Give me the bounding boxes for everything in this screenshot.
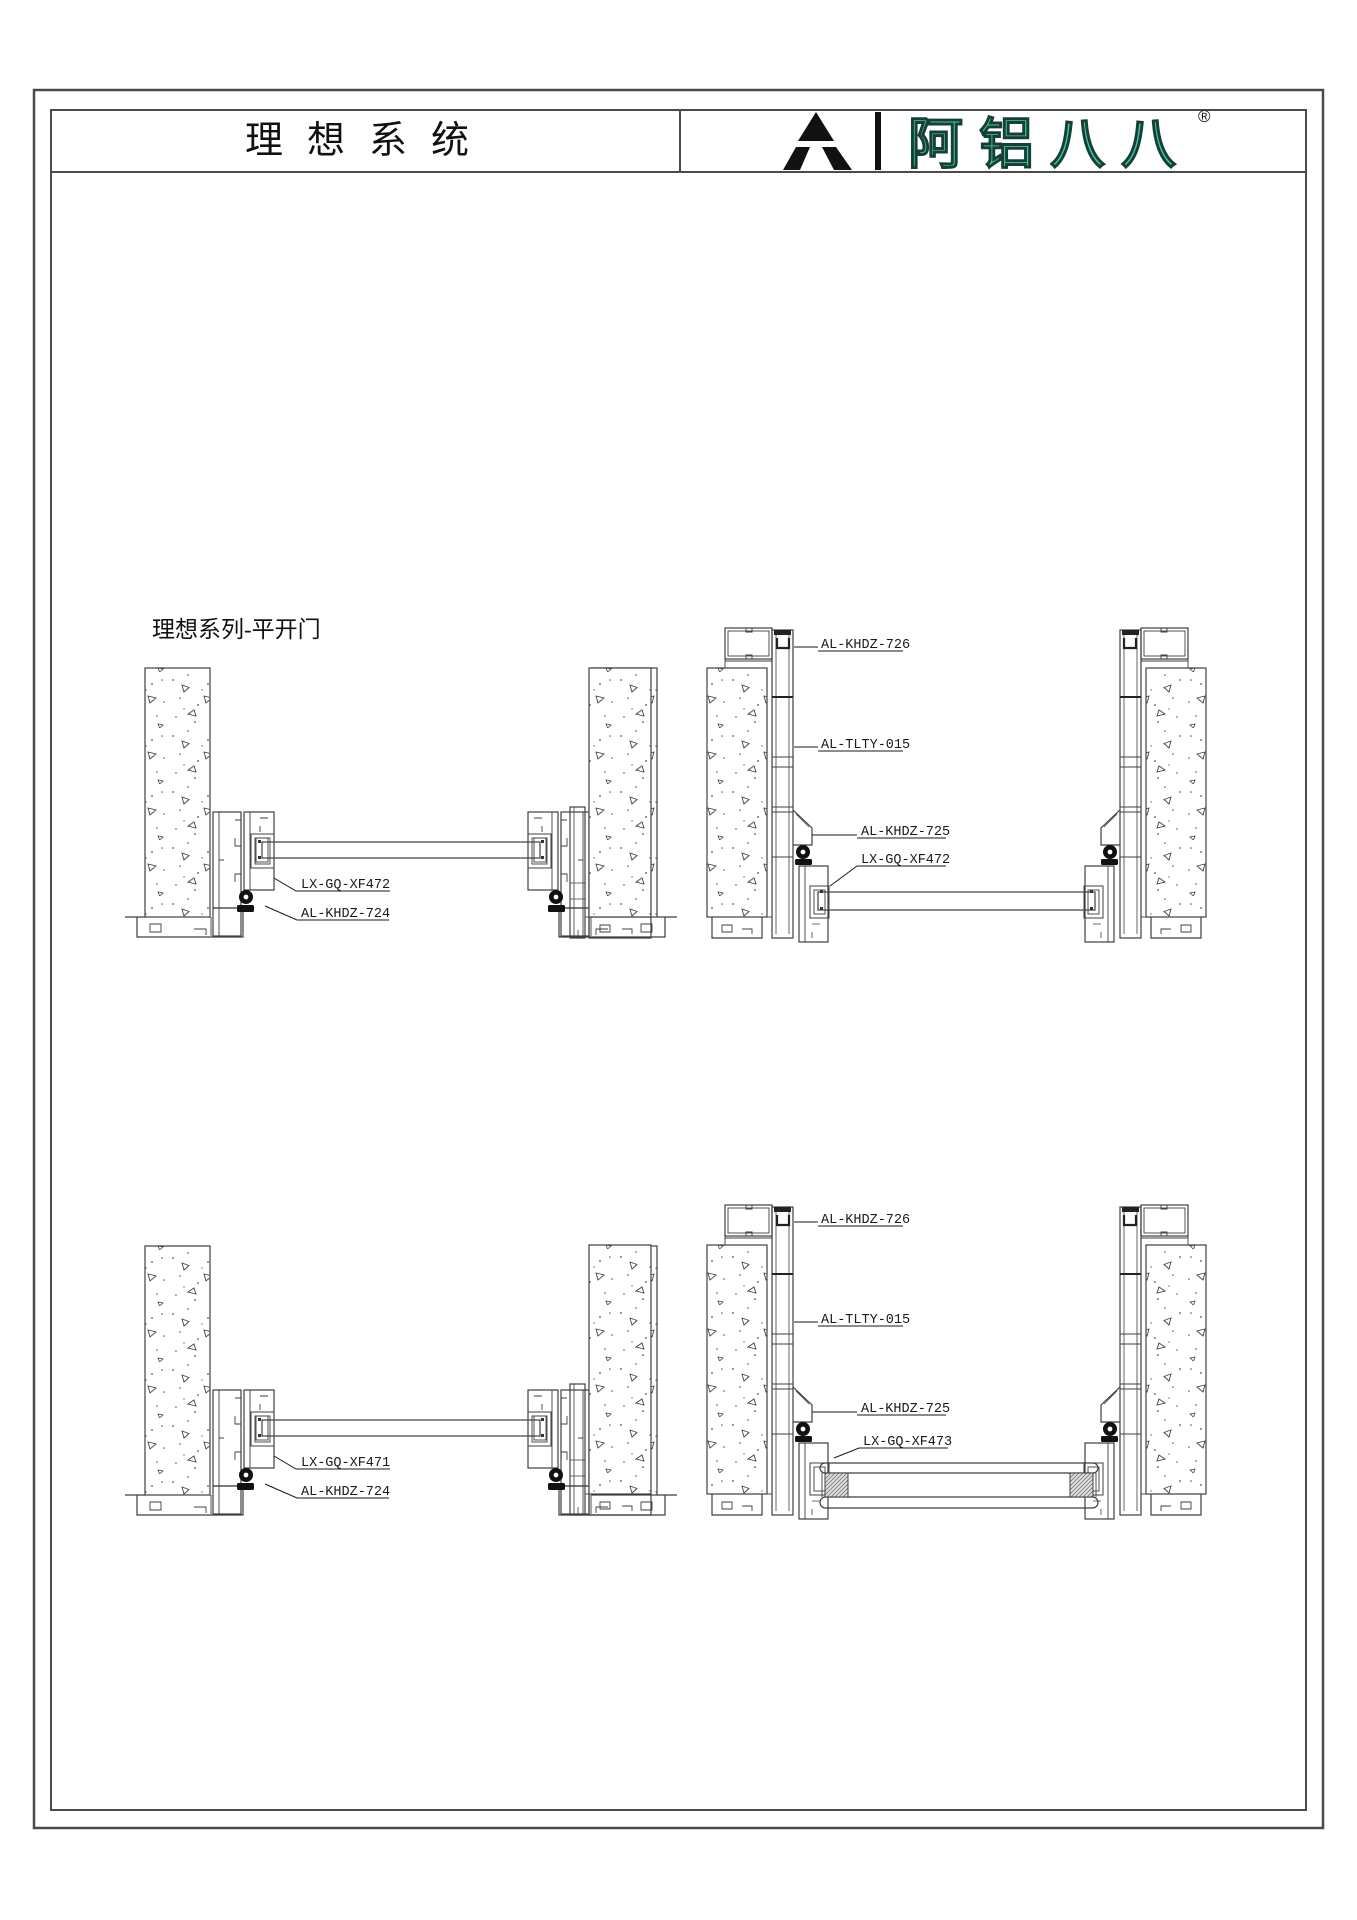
section-label: 理想系列-平开门 — [152, 617, 321, 642]
registered-trademark-icon: ® — [1198, 107, 1211, 126]
svg-text:LX-GQ-XF472: LX-GQ-XF472 — [861, 853, 950, 868]
brand-logo: 阿铝八八 ® — [783, 107, 1211, 175]
svg-text:LX-GQ-XF472: LX-GQ-XF472 — [301, 878, 390, 893]
label-adapter-bottomright: AL-KHDZ-725 — [812, 1402, 950, 1417]
svg-text:LX-GQ-XF471: LX-GQ-XF471 — [301, 1456, 390, 1471]
svg-text:AL-KHDZ-725: AL-KHDZ-725 — [861, 825, 950, 840]
svg-text:AL-KHDZ-726: AL-KHDZ-726 — [821, 1213, 910, 1228]
label-sash-topright: LX-GQ-XF472 — [830, 853, 950, 886]
drawing-top-right: AL-KHDZ-726 AL-TLTY-015 AL-KHDZ-725 LX-G… — [570, 628, 1206, 942]
label-sill-topleft: AL-KHDZ-724 — [265, 906, 390, 922]
label-sash-bottomright: LX-GQ-XF473 — [834, 1435, 952, 1458]
door-panel — [820, 1463, 1098, 1508]
cad-canvas: 理想系统 阿铝八八 ® 理想系列-平开门 LX-GQ-XF472 AL-KHDZ… — [0, 0, 1357, 1920]
drawing-sheet: 理想系统 阿铝八八 ® 理想系列-平开门 LX-GQ-XF472 AL-KHDZ… — [0, 0, 1357, 1920]
page-title: 理想系统 — [245, 120, 493, 162]
brand-name: 阿铝八八 — [908, 113, 1192, 175]
svg-text:AL-KHDZ-724: AL-KHDZ-724 — [301, 907, 390, 922]
svg-text:AL-KHDZ-725: AL-KHDZ-725 — [861, 1402, 950, 1417]
svg-text:AL-TLTY-015: AL-TLTY-015 — [821, 1313, 910, 1328]
page-borders — [34, 90, 1323, 1828]
svg-text:AL-KHDZ-726: AL-KHDZ-726 — [821, 638, 910, 653]
svg-text:AL-TLTY-015: AL-TLTY-015 — [821, 738, 910, 753]
leader-line — [830, 866, 946, 886]
label-headtube-bottomright: AL-KHDZ-726 — [794, 1213, 910, 1228]
label-sill-bottomleft: AL-KHDZ-724 — [265, 1484, 390, 1500]
drawing-bottom-right: AL-KHDZ-726 AL-TLTY-015 AL-KHDZ-725 LX-G… — [570, 1205, 1206, 1519]
label-mullion-topright: AL-TLTY-015 — [794, 738, 910, 753]
inner-border — [51, 110, 1306, 1810]
label-adapter-topright: AL-KHDZ-725 — [812, 825, 950, 840]
label-mullion-bottomright: AL-TLTY-015 — [794, 1313, 910, 1328]
title-block: 理想系统 阿铝八八 ® — [245, 107, 1211, 175]
outer-border — [34, 90, 1323, 1828]
label-headtube-topright: AL-KHDZ-726 — [794, 638, 910, 653]
label-sash-bottomleft: LX-GQ-XF471 — [274, 1456, 390, 1471]
logo-triangle-icon — [783, 112, 852, 170]
label-sash-topleft: LX-GQ-XF472 — [274, 878, 390, 893]
svg-text:AL-KHDZ-724: AL-KHDZ-724 — [301, 1485, 390, 1500]
svg-text:LX-GQ-XF473: LX-GQ-XF473 — [863, 1435, 952, 1450]
logo-separator-bar — [875, 112, 881, 170]
